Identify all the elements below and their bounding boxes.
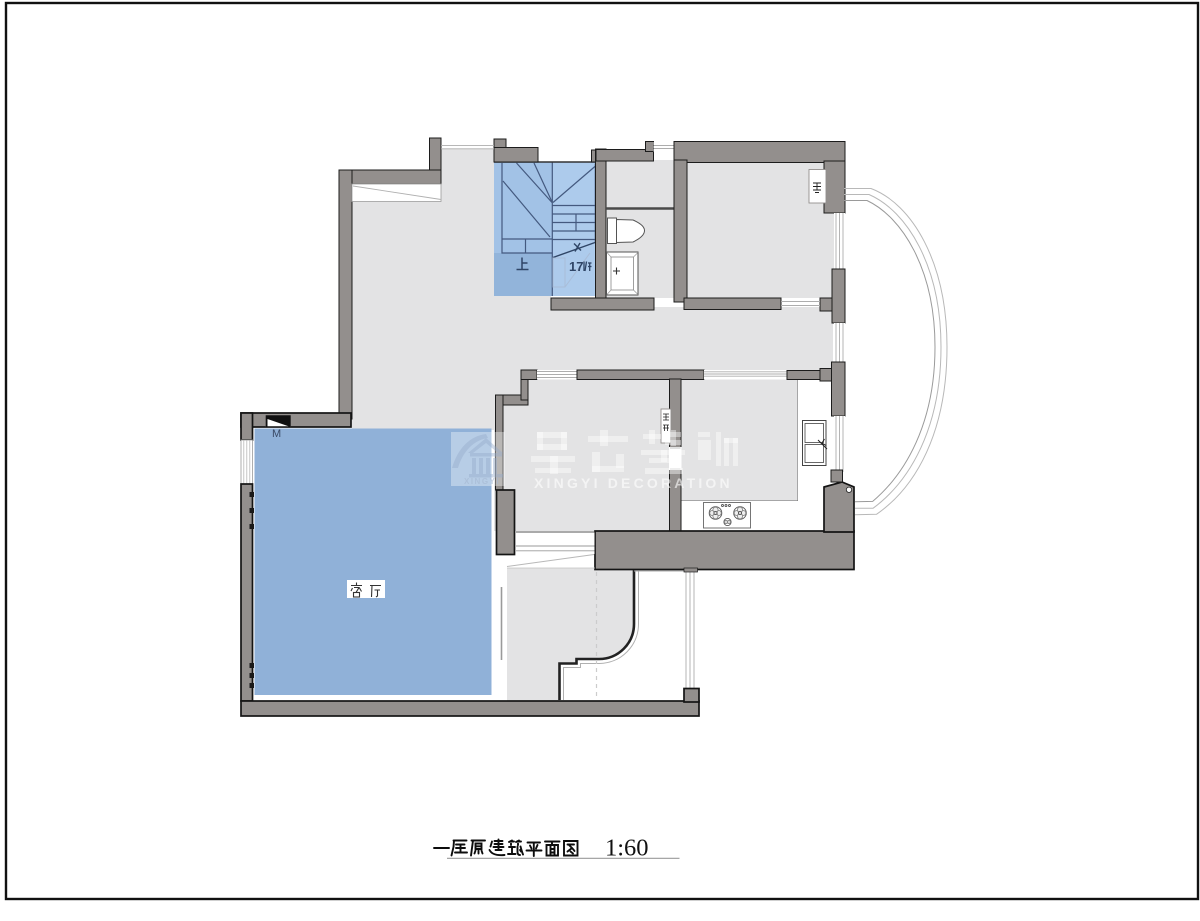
- svg-text:XINGYI DECORATION: XINGYI DECORATION: [534, 475, 733, 491]
- svg-text:XINGYI: XINGYI: [464, 477, 500, 486]
- svg-text:1:60: 1:60: [605, 835, 649, 862]
- svg-text:M: M: [272, 428, 281, 440]
- svg-text:17: 17: [569, 259, 583, 274]
